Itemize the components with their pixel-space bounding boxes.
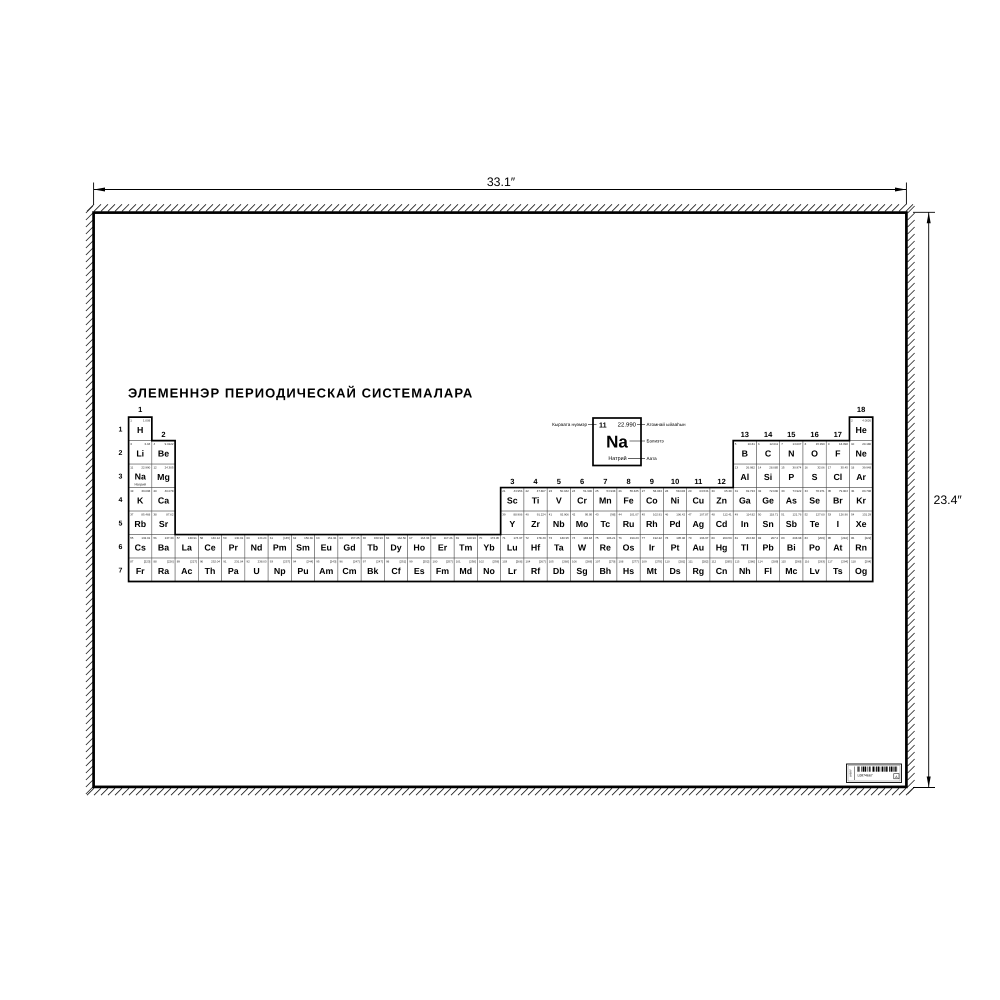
svg-text:Kr: Kr [856,495,866,505]
svg-text:Cf: Cf [391,566,400,576]
svg-text:1.008: 1.008 [143,418,151,422]
svg-text:[270]: [270] [609,559,616,563]
svg-text:12: 12 [717,477,725,486]
svg-text:49: 49 [735,512,739,516]
svg-text:180.95: 180.95 [560,536,569,540]
svg-text:Ta: Ta [554,542,564,552]
svg-text:P: P [788,472,794,482]
svg-text:[289]: [289] [772,559,779,563]
svg-text:Bk: Bk [367,566,378,576]
svg-text:140.91: 140.91 [234,536,243,540]
svg-text:101.07: 101.07 [630,512,639,516]
svg-text:79: 79 [688,536,692,540]
svg-text:Po: Po [809,542,821,552]
svg-text:Ar: Ar [856,472,866,482]
svg-text:O: O [811,448,818,458]
svg-text:32.06: 32.06 [817,465,825,469]
svg-text:192.22: 192.22 [653,536,662,540]
svg-text:Mt: Mt [647,566,657,576]
svg-text:5: 5 [557,477,561,486]
svg-text:102.91: 102.91 [653,512,662,516]
svg-text:106.42: 106.42 [676,512,685,516]
svg-text:15: 15 [781,465,785,469]
svg-text:104: 104 [526,559,531,563]
svg-text:1: 1 [119,426,123,433]
svg-text:Pt: Pt [671,542,680,552]
svg-text:46: 46 [665,512,669,516]
svg-text:68: 68 [433,536,437,540]
svg-text:51.996: 51.996 [583,489,592,493]
svg-text:[251]: [251] [400,559,407,563]
svg-text:72: 72 [526,536,530,540]
svg-text:Es: Es [414,566,425,576]
svg-text:20.180: 20.180 [862,442,871,446]
svg-text:39.098: 39.098 [141,489,150,493]
svg-text:Ra: Ra [158,566,169,576]
svg-text:21: 21 [502,489,506,493]
svg-text:173.05: 173.05 [490,536,499,540]
svg-text:85: 85 [828,536,832,540]
svg-text:10: 10 [671,477,679,486]
svg-text:150.36: 150.36 [304,536,313,540]
svg-text:55: 55 [130,536,134,540]
svg-text:14.007: 14.007 [793,442,802,446]
svg-text:H: H [137,425,143,435]
svg-text:114: 114 [758,559,763,563]
svg-text:88.906: 88.906 [513,512,522,516]
svg-text:107: 107 [595,559,600,563]
svg-text:At: At [833,542,842,552]
svg-text:97: 97 [363,559,367,563]
svg-text:138.91: 138.91 [188,536,197,540]
svg-text:Rf: Rf [531,566,540,576]
svg-text:32: 32 [758,489,762,493]
svg-text:Tb: Tb [367,542,378,552]
svg-text:[286]: [286] [748,559,755,563]
svg-text:Re: Re [600,542,611,552]
svg-text:71: 71 [502,536,506,540]
svg-text:Lu: Lu [507,542,518,552]
svg-text:Ce: Ce [204,542,215,552]
svg-text:Pb: Pb [762,542,774,552]
svg-text:Si: Si [764,472,772,482]
svg-text:39: 39 [502,512,506,516]
svg-text:53: 53 [828,512,832,516]
svg-text:7: 7 [119,567,123,574]
svg-text:231.04: 231.04 [234,559,243,563]
svg-text:Pr: Pr [229,542,239,552]
svg-text:Y: Y [509,519,515,529]
svg-text:Al: Al [740,472,749,482]
svg-text:102: 102 [479,559,484,563]
svg-text:7: 7 [603,477,607,486]
svg-text:4: 4 [119,497,123,504]
svg-text:W: W [578,542,587,552]
svg-text:14: 14 [758,465,762,469]
svg-text:23.4″: 23.4″ [934,493,963,507]
svg-text:232.04: 232.04 [211,559,220,563]
svg-text:88: 88 [153,559,157,563]
svg-text:5: 5 [119,520,123,527]
svg-text:Lv: Lv [809,566,819,576]
svg-text:64: 64 [339,536,343,540]
svg-text:17: 17 [834,430,842,439]
svg-text:Nb: Nb [553,519,565,529]
svg-text:Tm: Tm [459,542,472,552]
svg-text:15.999: 15.999 [816,442,825,446]
svg-text:11: 11 [694,477,702,486]
svg-text:66: 66 [386,536,390,540]
svg-text:112.41: 112.41 [723,512,732,516]
svg-text:50: 50 [758,512,762,516]
svg-text:44: 44 [619,512,623,516]
svg-text:22: 22 [526,489,530,493]
svg-text:[243]: [243] [330,559,337,563]
svg-text:Na: Na [606,432,628,451]
svg-text:91: 91 [223,559,227,563]
svg-text:140.12: 140.12 [211,536,220,540]
svg-text:30: 30 [712,489,716,493]
svg-text:Pa: Pa [228,566,239,576]
svg-text:41: 41 [549,512,553,516]
svg-text:2: 2 [161,430,165,439]
svg-text:Rb: Rb [134,519,146,529]
svg-text:12: 12 [153,465,157,469]
svg-text:167.26: 167.26 [444,536,453,540]
svg-text:[247]: [247] [376,559,383,563]
svg-text:14: 14 [764,430,773,439]
svg-text:[269]: [269] [586,559,593,563]
svg-text:18: 18 [857,405,865,414]
svg-text:118.71: 118.71 [769,512,778,516]
svg-text:31: 31 [735,489,739,493]
svg-text:58.693: 58.693 [676,489,685,493]
svg-text:99: 99 [409,559,413,563]
svg-text:Ca: Ca [158,495,169,505]
svg-text:174.97: 174.97 [513,536,522,540]
svg-text:48: 48 [712,512,716,516]
svg-text:Cr: Cr [577,495,587,505]
svg-text:20: 20 [153,489,157,493]
svg-text:Pd: Pd [669,519,680,529]
svg-text:N: N [788,448,794,458]
svg-text:43: 43 [595,512,599,516]
svg-text:[259]: [259] [493,559,500,563]
svg-text:137.33: 137.33 [165,536,174,540]
svg-text:Er: Er [438,542,448,552]
svg-text:[294]: [294] [841,559,848,563]
svg-text:Hg: Hg [716,542,728,552]
svg-text:92: 92 [246,559,250,563]
svg-text:Tc: Tc [600,519,610,529]
svg-text:Атомнай ыйааһын: Атомнай ыйааһын [647,422,686,427]
svg-text:In: In [741,519,749,529]
svg-text:109: 109 [642,559,647,563]
svg-text:69: 69 [456,536,460,540]
svg-text:Gd: Gd [343,542,355,552]
svg-text:Mn: Mn [599,495,612,505]
svg-text:[145]: [145] [283,536,290,540]
svg-text:35: 35 [828,489,832,493]
svg-text:[293]: [293] [818,559,825,563]
svg-text:[209]: [209] [818,536,825,540]
svg-text:Ho: Ho [413,542,425,552]
svg-text:112: 112 [712,559,717,563]
svg-text:Ds: Ds [669,566,680,576]
svg-text:18: 18 [851,465,855,469]
svg-text:63: 63 [316,536,320,540]
svg-text:Cd: Cd [716,519,728,529]
svg-text:110: 110 [665,559,670,563]
svg-text:Натрий: Натрий [608,456,626,462]
svg-text:Ag: Ag [692,519,704,529]
svg-text:52: 52 [805,512,809,516]
svg-text:90: 90 [200,559,204,563]
svg-text:47: 47 [688,512,692,516]
svg-text:126.90: 126.90 [839,512,848,516]
svg-text:[222]: [222] [865,536,872,540]
svg-text:[252]: [252] [423,559,430,563]
svg-text:Zr: Zr [531,519,540,529]
svg-text:I: I [837,519,839,529]
svg-text:[268]: [268] [562,559,569,563]
svg-text:85.468: 85.468 [141,512,150,516]
svg-text:207.2: 207.2 [771,536,779,540]
svg-text:No: No [483,566,495,576]
svg-text:73: 73 [549,536,553,540]
svg-text:Sc: Sc [507,495,518,505]
svg-text:As: As [786,495,797,505]
svg-text:[244]: [244] [307,559,314,563]
svg-text:Hf: Hf [531,542,540,552]
svg-text:28.085: 28.085 [769,465,778,469]
svg-text:Cm: Cm [342,566,356,576]
svg-text:L0874667: L0874667 [858,773,873,777]
svg-text:42: 42 [572,512,576,516]
svg-text:74.922: 74.922 [793,489,802,493]
svg-text:238.03: 238.03 [258,559,267,563]
svg-text:Nd: Nd [251,542,263,552]
svg-text:6: 6 [119,544,123,551]
svg-text:16: 16 [805,465,809,469]
svg-text:50.942: 50.942 [560,489,569,493]
svg-text:[267]: [267] [539,559,546,563]
svg-text:Sn: Sn [762,519,773,529]
svg-text:19: 19 [130,489,134,493]
svg-text:33.1″: 33.1″ [487,175,516,189]
svg-text:22.990: 22.990 [141,465,150,469]
svg-text:30.974: 30.974 [793,465,802,469]
svg-text:Be: Be [158,448,169,458]
svg-text:72.630: 72.630 [769,489,778,493]
svg-text:4.0026: 4.0026 [862,418,871,422]
svg-text:92.906: 92.906 [560,512,569,516]
svg-text:Og: Og [855,566,867,576]
svg-text:10.81: 10.81 [748,442,756,446]
svg-text:15: 15 [787,430,795,439]
svg-text:83: 83 [781,536,785,540]
svg-text:208.98: 208.98 [793,536,802,540]
svg-text:[226]: [226] [167,559,174,563]
svg-text:B: B [742,448,748,458]
svg-text:1: 1 [138,405,142,414]
svg-text:Th: Th [205,566,216,576]
svg-text:C: C [765,448,772,458]
svg-text:Au: Au [692,542,704,552]
svg-text:101: 101 [456,559,461,563]
svg-text:78: 78 [665,536,669,540]
svg-text:74: 74 [572,536,576,540]
svg-text:87.62: 87.62 [166,512,174,516]
svg-text:127.60: 127.60 [816,512,825,516]
svg-text:Rn: Rn [855,542,867,552]
svg-text:WBRF: WBRF [850,769,853,777]
svg-text:94: 94 [293,559,297,563]
svg-text:[285]: [285] [725,559,732,563]
svg-text:86: 86 [851,536,855,540]
svg-text:Кыраата нүөмэр: Кыраата нүөмэр [552,422,587,427]
svg-text:190.23: 190.23 [630,536,639,540]
svg-text:S: S [812,472,818,482]
svg-text:Na: Na [135,471,146,481]
svg-text:Ts: Ts [833,566,843,576]
svg-text:28: 28 [665,489,669,493]
svg-text:Np: Np [274,566,286,576]
svg-text:40.078: 40.078 [165,489,174,493]
svg-text:Cn: Cn [716,566,728,576]
svg-text:27: 27 [642,489,646,493]
svg-text:81: 81 [735,536,739,540]
svg-text:95.95: 95.95 [585,512,593,516]
svg-text:195.08: 195.08 [676,536,685,540]
svg-text:78.971: 78.971 [816,489,825,493]
svg-text:Натрий: Натрий [134,482,146,486]
svg-text:Dy: Dy [390,542,401,552]
svg-text:76: 76 [619,536,623,540]
svg-text:Ru: Ru [623,519,635,529]
svg-text:113: 113 [735,559,740,563]
svg-text:98: 98 [386,559,390,563]
svg-text:[290]: [290] [795,559,802,563]
svg-text:40: 40 [526,512,530,516]
svg-text:Ni: Ni [671,495,680,505]
svg-text:3: 3 [510,477,514,486]
svg-text:44.956: 44.956 [513,489,522,493]
svg-text:183.84: 183.84 [583,536,592,540]
svg-text:[294]: [294] [865,559,872,563]
svg-text:La: La [182,542,192,552]
svg-text:2: 2 [119,450,123,457]
svg-text:79.904: 79.904 [839,489,848,493]
svg-text:Ba: Ba [158,542,169,552]
svg-text:151.96: 151.96 [327,536,336,540]
svg-text:132.91: 132.91 [141,536,150,540]
svg-text:Sm: Sm [296,542,310,552]
svg-text:62: 62 [293,536,297,540]
svg-text:54.938: 54.938 [606,489,615,493]
svg-text:[237]: [237] [283,559,290,563]
svg-text:3: 3 [119,473,123,480]
svg-text:106: 106 [572,559,577,563]
svg-text:95: 95 [316,559,320,563]
svg-text:ЭЛЕМЕННЭР ПЕРИОДИЧЕСКАЙ СИСТЕМ: ЭЛЕМЕННЭР ПЕРИОДИЧЕСКАЙ СИСТЕМАЛАРА [128,386,473,401]
svg-text:Se: Se [809,495,820,505]
svg-text:Ac: Ac [181,566,192,576]
svg-text:[247]: [247] [353,559,360,563]
svg-text:Xe: Xe [856,519,867,529]
svg-text:Pm: Pm [273,542,287,552]
svg-text:[281]: [281] [679,559,686,563]
svg-text:[266]: [266] [516,559,523,563]
svg-text:Te: Te [810,519,820,529]
svg-text:70: 70 [479,536,483,540]
svg-text:111: 111 [688,559,693,563]
svg-text:29: 29 [688,489,692,493]
svg-text:[282]: [282] [702,559,709,563]
svg-text:11: 11 [599,420,607,429]
svg-text:35.45: 35.45 [841,465,849,469]
svg-text:13: 13 [741,430,749,439]
svg-text:Аата: Аата [647,456,658,461]
svg-text:Fe: Fe [623,495,633,505]
svg-text:77: 77 [642,536,646,540]
svg-text:Mg: Mg [157,472,170,482]
svg-text:9: 9 [650,477,654,486]
svg-text:83.798: 83.798 [862,489,871,493]
svg-text:12.011: 12.011 [769,442,778,446]
svg-text:158.93: 158.93 [374,536,383,540]
svg-text:36: 36 [851,489,855,493]
svg-text:114.82: 114.82 [746,512,755,516]
svg-text:[257]: [257] [446,559,453,563]
svg-text:58.933: 58.933 [653,489,662,493]
svg-text:22.990: 22.990 [618,422,637,429]
svg-text:47.867: 47.867 [537,489,546,493]
svg-text:10: 10 [851,442,855,446]
svg-text:Mo: Mo [576,519,589,529]
svg-text:Sg: Sg [576,566,587,576]
svg-text:Eu: Eu [321,542,332,552]
svg-text:He: He [855,425,866,435]
svg-text:Hs: Hs [623,566,634,576]
svg-text:84: 84 [805,536,809,540]
svg-text:Ne: Ne [855,448,866,458]
svg-text:Ir: Ir [649,542,655,552]
svg-text:121.76: 121.76 [793,512,802,516]
svg-text:Yb: Yb [483,542,495,552]
svg-text:51: 51 [781,512,785,516]
svg-text:Lr: Lr [508,566,517,576]
svg-text:[258]: [258] [469,559,476,563]
svg-text:58: 58 [200,536,204,540]
svg-text:96: 96 [339,559,343,563]
svg-text:18.998: 18.998 [839,442,848,446]
svg-text:Os: Os [623,542,635,552]
svg-text:Fl: Fl [764,566,772,576]
svg-text:118: 118 [851,559,856,563]
svg-text:89: 89 [177,559,181,563]
svg-text:55.845: 55.845 [630,489,639,493]
svg-text:80: 80 [712,536,716,540]
svg-text:16: 16 [810,430,818,439]
svg-text:23: 23 [549,489,553,493]
svg-text:Li: Li [136,448,144,458]
svg-text:87: 87 [130,559,134,563]
svg-text:Ge: Ge [762,495,774,505]
svg-text:Ti: Ti [532,495,540,505]
svg-text:57: 57 [177,536,181,540]
svg-text:144.24: 144.24 [258,536,267,540]
